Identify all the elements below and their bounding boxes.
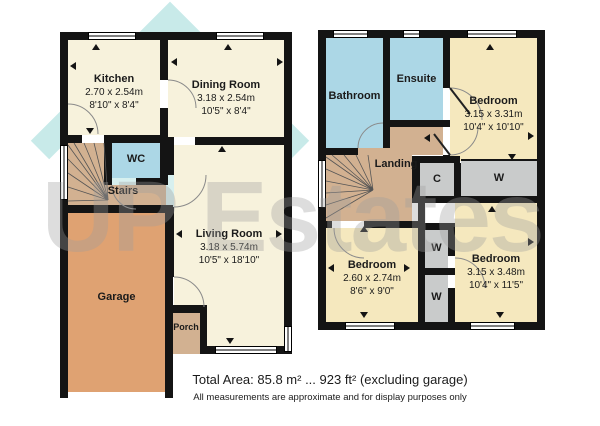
measure-marker (277, 58, 283, 66)
measure-marker (86, 128, 94, 134)
measure-marker (70, 62, 76, 70)
wall (326, 148, 358, 155)
kitchen-label: Kitchen 2.70 x 2.54m 8'10" x 8'4" (68, 72, 160, 112)
footer: Total Area: 85.8 m² ... 923 ft² (excludi… (150, 372, 510, 403)
garage-label: Garage (68, 291, 165, 303)
wall (448, 288, 455, 322)
window (284, 326, 292, 352)
measure-marker (218, 146, 226, 152)
wall (195, 137, 284, 145)
window (470, 322, 515, 330)
wall (443, 38, 450, 88)
bedroom1-label: Bedroom 3.15 x 3.31m 10'4" x 10'10" (450, 94, 537, 134)
window (333, 30, 368, 38)
measure-marker (226, 338, 234, 344)
watermark-text: UP Estates (42, 160, 543, 275)
floorplan-canvas: Kitchen 2.70 x 2.54m 8'10" x 8'4" Dining… (0, 0, 600, 426)
room-landing-doorway (358, 148, 390, 155)
wall (68, 135, 82, 143)
bathroom-label: Bathroom (326, 90, 383, 102)
total-area-text: Total Area: 85.8 m² ... 923 ft² (excludi… (150, 372, 510, 387)
measure-marker (496, 312, 504, 318)
wall (390, 120, 450, 127)
measure-marker (92, 44, 100, 50)
disclaimer-text: All measurements are approximate and for… (150, 392, 510, 403)
measure-marker (224, 44, 232, 50)
wardrobe3-label: W (425, 291, 448, 303)
measure-marker (171, 58, 177, 66)
window (215, 346, 277, 354)
window (88, 32, 136, 40)
window (216, 32, 264, 40)
window (467, 30, 517, 38)
window (403, 30, 420, 38)
ensuite-label: Ensuite (390, 73, 443, 85)
window (345, 322, 395, 330)
wall (108, 135, 160, 143)
wall (160, 40, 168, 80)
wall (200, 313, 207, 354)
wall (383, 38, 390, 148)
wall (173, 305, 207, 313)
measure-marker (424, 134, 430, 142)
room-porch (173, 313, 200, 354)
room-landing-upper (390, 127, 443, 155)
porch-label: Porch (168, 322, 204, 332)
measure-marker (360, 312, 368, 318)
measure-marker (486, 44, 494, 50)
dining-label: Dining Room 3.18 x 2.54m 10'5" x 8'4" (168, 78, 284, 118)
